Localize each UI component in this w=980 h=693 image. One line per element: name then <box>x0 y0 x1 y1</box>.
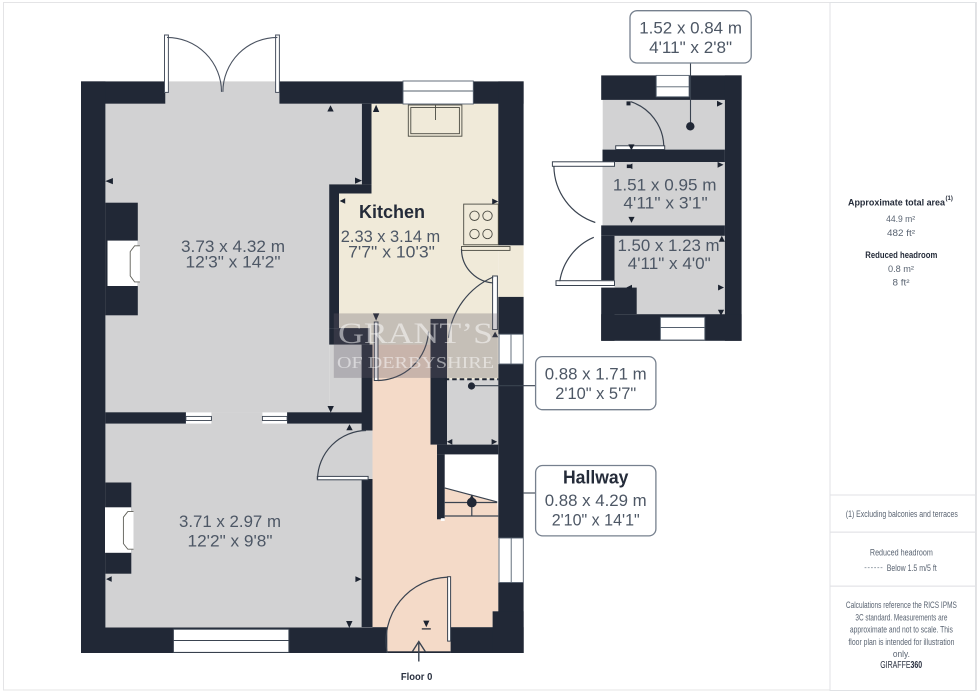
svg-text:Reduced headroom: Reduced headroom <box>870 547 933 557</box>
svg-text:1.51 x 0.95 m: 1.51 x 0.95 m <box>613 176 717 195</box>
svg-text:Reduced headroom: Reduced headroom <box>865 250 937 260</box>
svg-text:Floor 0: Floor 0 <box>401 671 433 683</box>
svg-text:4'11" x 2'8": 4'11" x 2'8" <box>649 38 732 57</box>
svg-text:Below 1.5 m/5 ft: Below 1.5 m/5 ft <box>887 563 937 573</box>
svg-text:GRANT’S: GRANT’S <box>338 317 493 350</box>
svg-text:0.88 x 4.29 m: 0.88 x 4.29 m <box>545 491 647 510</box>
svg-text:482 ft²: 482 ft² <box>887 228 915 238</box>
svg-text:1.50 x 1.23 m: 1.50 x 1.23 m <box>617 236 719 255</box>
svg-text:2'10" x 5'7": 2'10" x 5'7" <box>555 384 636 403</box>
svg-text:Calculations reference the RIC: Calculations reference the RICS IPMS <box>846 600 957 610</box>
svg-text:2'10" x 14'1": 2'10" x 14'1" <box>552 511 640 530</box>
svg-text:3C standard. Measurements are: 3C standard. Measurements are <box>855 612 947 622</box>
svg-text:Approximate total area: Approximate total area <box>848 198 946 209</box>
svg-text:8 ft²: 8 ft² <box>893 277 910 287</box>
svg-text:1.52 x 0.84 m: 1.52 x 0.84 m <box>639 19 742 38</box>
svg-text:floor plan is intended for ill: floor plan is intended for illustration <box>848 637 954 647</box>
svg-text:(1): (1) <box>946 196 953 202</box>
svg-text:approximate and not to scale.: approximate and not to scale. This <box>850 625 953 635</box>
svg-text:3.71 x 2.97 m: 3.71 x 2.97 m <box>179 512 281 531</box>
svg-text:4'11" x 3'1": 4'11" x 3'1" <box>623 194 707 213</box>
svg-text:OF DERBYSHIRE: OF DERBYSHIRE <box>337 353 494 372</box>
svg-text:0.8 m²: 0.8 m² <box>888 264 914 274</box>
svg-text:4'11" x 4'0": 4'11" x 4'0" <box>628 254 711 273</box>
svg-text:(1) Excluding balconies and te: (1) Excluding balconies and terraces <box>846 509 958 519</box>
svg-text:GIRAFFE360: GIRAFFE360 <box>880 660 922 671</box>
svg-text:only.: only. <box>893 649 910 659</box>
svg-text:44.9 m²: 44.9 m² <box>886 214 915 224</box>
svg-text:12'2" x 9'8": 12'2" x 9'8" <box>188 532 273 551</box>
svg-text:Kitchen: Kitchen <box>359 202 425 222</box>
svg-text:12'3" x 14'2": 12'3" x 14'2" <box>186 253 281 272</box>
svg-text:7'7" x 10'3": 7'7" x 10'3" <box>348 243 435 262</box>
svg-text:Hallway: Hallway <box>563 468 628 488</box>
svg-text:0.88 x 1.71 m: 0.88 x 1.71 m <box>545 365 647 384</box>
